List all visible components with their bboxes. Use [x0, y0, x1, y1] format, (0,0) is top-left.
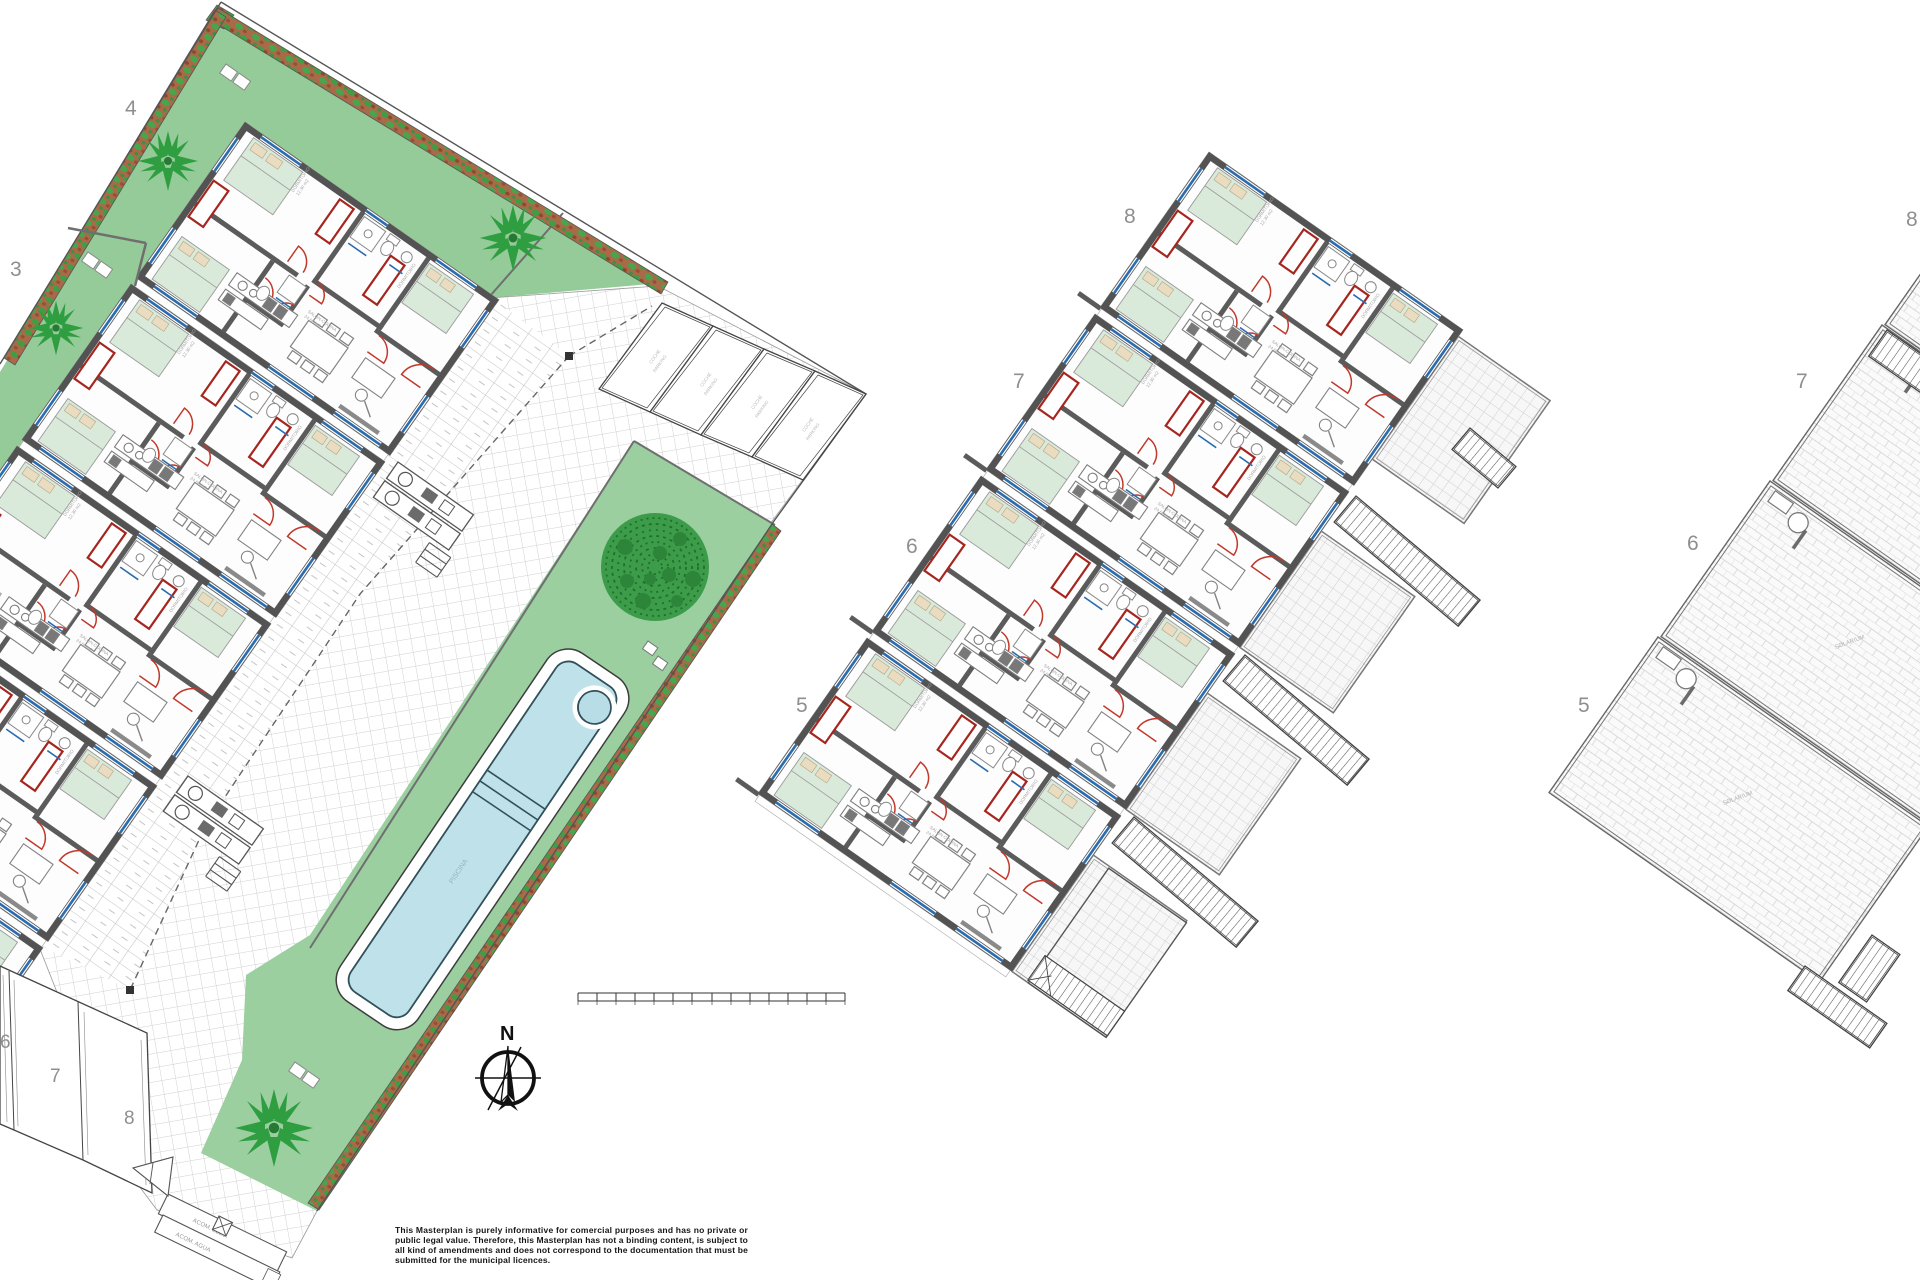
- svg-text:7: 7: [1796, 370, 1808, 393]
- svg-text:7: 7: [50, 1066, 61, 1087]
- svg-text:7: 7: [1013, 370, 1025, 393]
- svg-text:6: 6: [906, 535, 918, 558]
- svg-text:3: 3: [10, 258, 22, 281]
- svg-text:submitted for the municipal li: submitted for the municipal licences.: [395, 1255, 550, 1265]
- svg-text:8: 8: [1906, 208, 1918, 231]
- svg-text:6: 6: [0, 1032, 11, 1053]
- svg-text:5: 5: [796, 694, 808, 717]
- svg-text:5: 5: [1578, 694, 1590, 717]
- svg-text:8: 8: [124, 1108, 135, 1129]
- svg-text:public legal value. Therefore,: public legal value. Therefore, this Mast…: [395, 1235, 748, 1245]
- svg-text:N: N: [500, 1023, 514, 1045]
- svg-text:all kind of amendments and doe: all kind of amendments and does not corr…: [395, 1245, 748, 1255]
- svg-text:8: 8: [1124, 205, 1136, 228]
- svg-text:4: 4: [125, 97, 137, 120]
- svg-text:6: 6: [1687, 532, 1699, 555]
- svg-text:This Masterplan is purely info: This Masterplan is purely informative fo…: [395, 1225, 749, 1235]
